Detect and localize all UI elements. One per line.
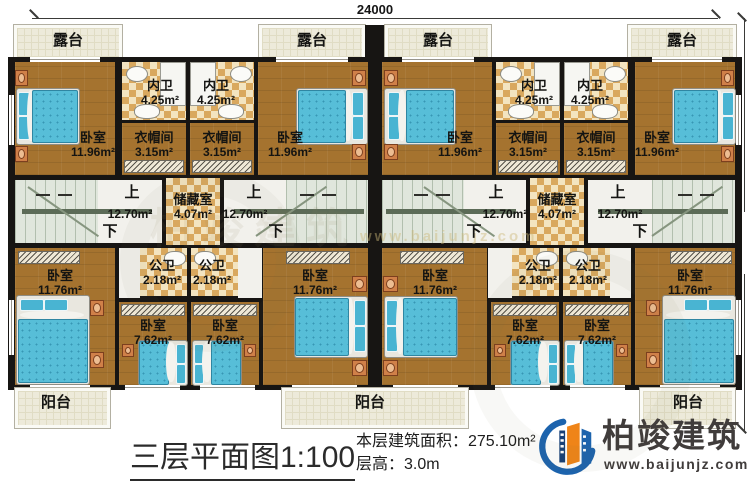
pillow <box>708 299 732 311</box>
storage-label: 储藏室4.07m² <box>523 192 591 221</box>
window <box>402 57 474 62</box>
nightstand <box>15 70 28 86</box>
nightstand <box>721 70 734 86</box>
stair-direction-arrow <box>436 194 450 196</box>
cloakroom-label: 衣帽间3.15m² <box>496 130 560 159</box>
company-logo: 柏竣建筑 www.baijunjz.com <box>538 414 750 478</box>
bedroom-label: 卧室7.62m² <box>119 318 187 347</box>
stair-up-label: 上 <box>482 185 510 200</box>
company-name: 柏竣建筑 <box>602 418 742 454</box>
bed-blanket <box>211 341 241 385</box>
public-bath-label: 公卫2.18m² <box>560 258 616 287</box>
pillow <box>176 364 186 384</box>
nightstand <box>646 300 660 316</box>
nightstand <box>721 146 734 162</box>
nightstand <box>384 70 398 86</box>
stair-direction-arrow <box>322 194 336 196</box>
inner-bath-label: 内卫4.25m² <box>560 78 620 107</box>
stair-area-label: 12.70m² <box>215 207 275 221</box>
window <box>736 95 741 145</box>
nightstand <box>384 144 398 160</box>
bedroom-label: 卧室11.96m² <box>425 130 495 159</box>
bed-blanket <box>295 298 349 356</box>
nightstand <box>352 360 367 376</box>
pillow <box>176 344 186 364</box>
bedroom-label: 卧室11.96m² <box>60 130 126 159</box>
top-dimension-line <box>32 18 718 19</box>
window <box>125 385 180 390</box>
nightstand <box>352 70 366 86</box>
bedroom-label: 卧室7.62m² <box>191 318 259 347</box>
pillow <box>722 92 734 116</box>
wardrobe <box>124 160 184 173</box>
company-website: www.baijunjz.com <box>604 456 749 472</box>
window <box>570 385 625 390</box>
nightstand <box>383 276 398 292</box>
stair-area-label: 12.70m² <box>100 207 160 221</box>
stair-up-label: 上 <box>240 185 268 200</box>
stair-direction-arrow <box>36 194 50 196</box>
nightstand <box>15 146 28 162</box>
top-dimension-value: 24000 <box>340 2 410 16</box>
stair-up-label: 上 <box>604 185 632 200</box>
nightstand <box>383 360 398 376</box>
window <box>495 385 550 390</box>
terrace-label: 露台 <box>654 33 710 48</box>
stair-direction-arrow <box>58 194 72 196</box>
bed-blanket <box>139 341 169 385</box>
public-bath-label: 公卫2.18m² <box>134 258 190 287</box>
balcony-label: 阳台 <box>660 395 716 410</box>
pillow <box>354 326 366 352</box>
terrace-label: 露台 <box>40 33 96 48</box>
pillow <box>548 364 558 384</box>
corridor <box>488 248 512 298</box>
bed-sheet <box>538 342 548 382</box>
public-bath-label: 公卫2.18m² <box>184 258 240 287</box>
window <box>9 300 14 355</box>
window <box>9 95 14 145</box>
wardrobe <box>498 160 558 173</box>
terrace-label: 露台 <box>284 33 340 48</box>
nightstand <box>90 300 104 316</box>
bed-blanket <box>18 319 88 383</box>
stair-down-label: 下 <box>96 224 124 239</box>
pillow <box>548 344 558 364</box>
bed-blanket <box>511 341 541 385</box>
stair-down-label: 下 <box>460 224 488 239</box>
wardrobe <box>670 251 732 264</box>
bedroom-label: 卧室11.76m² <box>25 268 95 297</box>
bedroom-label: 卧室11.76m² <box>400 268 470 297</box>
nightstand <box>352 276 367 292</box>
balcony-label: 阳台 <box>28 395 84 410</box>
wardrobe <box>286 251 350 264</box>
stair-direction-arrow <box>300 194 314 196</box>
wardrobe <box>493 304 557 316</box>
wardrobe <box>192 160 252 173</box>
floorplan-page: 24000 13320 露台 露台 露台 露台 卧室11.96m² 内卫4.25… <box>0 0 750 481</box>
public-bath-label: 公卫2.18m² <box>510 258 566 287</box>
stair-down-label: 下 <box>262 224 290 239</box>
terrace-label: 露台 <box>410 33 466 48</box>
window <box>200 385 255 390</box>
floor-height-text: 层高：3.0m <box>356 453 440 476</box>
wardrobe <box>400 251 464 264</box>
wardrobe <box>565 304 629 316</box>
stair-down-label: 下 <box>626 224 654 239</box>
terrace-divider-wall <box>365 25 385 61</box>
pillow <box>44 299 68 311</box>
bedroom-label: 卧室11.96m² <box>255 130 325 159</box>
pillow <box>352 92 364 116</box>
window <box>736 300 741 355</box>
pillow <box>722 116 734 140</box>
inner-bath-label: 内卫4.25m² <box>504 78 564 107</box>
stair-area-label: 12.70m² <box>590 207 650 221</box>
inner-bath-label: 内卫4.25m² <box>186 78 246 107</box>
cloakroom-label: 衣帽间3.15m² <box>122 130 186 159</box>
window <box>30 57 100 62</box>
bedroom-label: 卧室11.76m² <box>655 268 725 297</box>
plan-title: 三层平面图1:100 <box>130 432 355 481</box>
wardrobe <box>193 304 257 316</box>
bed-sheet <box>20 311 84 319</box>
window <box>652 57 722 62</box>
bedroom-label: 卧室11.76m² <box>280 268 350 297</box>
bedroom-label: 卧室7.62m² <box>491 318 559 347</box>
pillow <box>20 299 44 311</box>
company-logo-icon <box>538 416 600 476</box>
balcony-label: 阳台 <box>342 395 398 410</box>
bed-blanket <box>583 341 613 385</box>
wardrobe <box>121 304 185 316</box>
bed-sheet <box>166 342 176 382</box>
floor-area-text: 本层建筑面积：275.10m² <box>356 430 536 453</box>
bedroom-label: 卧室7.62m² <box>563 318 631 347</box>
window <box>276 57 348 62</box>
bed-sheet <box>398 90 406 141</box>
pillow <box>684 299 708 311</box>
cloakroom-label: 衣帽间3.15m² <box>190 130 254 159</box>
nightstand <box>352 144 366 160</box>
nightstand <box>646 352 660 368</box>
wardrobe <box>566 160 626 173</box>
bed-blanket <box>403 298 457 356</box>
nightstand <box>90 352 104 368</box>
pillow <box>354 300 366 326</box>
pillow <box>352 116 364 140</box>
wardrobe <box>18 251 80 264</box>
stair-up-label: 上 <box>118 185 146 200</box>
bed-blanket <box>664 319 734 383</box>
bed-sheet <box>666 311 730 319</box>
cloakroom-label: 衣帽间3.15m² <box>564 130 628 159</box>
stair-direction-arrow <box>700 194 714 196</box>
stair-direction-arrow <box>678 194 692 196</box>
inner-bath-label: 内卫4.25m² <box>130 78 190 107</box>
corridor <box>238 248 262 298</box>
bedroom-label: 卧室11.96m² <box>624 130 690 159</box>
dimension-tick <box>737 12 747 22</box>
stair-direction-arrow <box>414 194 428 196</box>
